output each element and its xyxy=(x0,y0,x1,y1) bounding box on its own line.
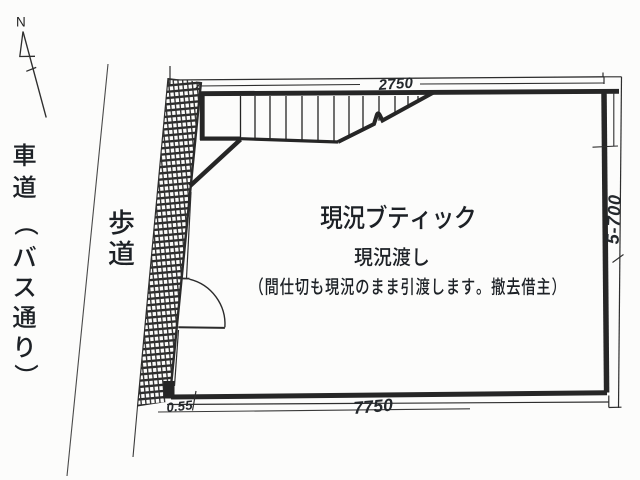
svg-text:5-700: 5-700 xyxy=(603,194,626,245)
svg-text:7750: 7750 xyxy=(353,395,394,418)
svg-text:0.55: 0.55 xyxy=(166,397,194,415)
svg-text:N: N xyxy=(16,15,26,30)
